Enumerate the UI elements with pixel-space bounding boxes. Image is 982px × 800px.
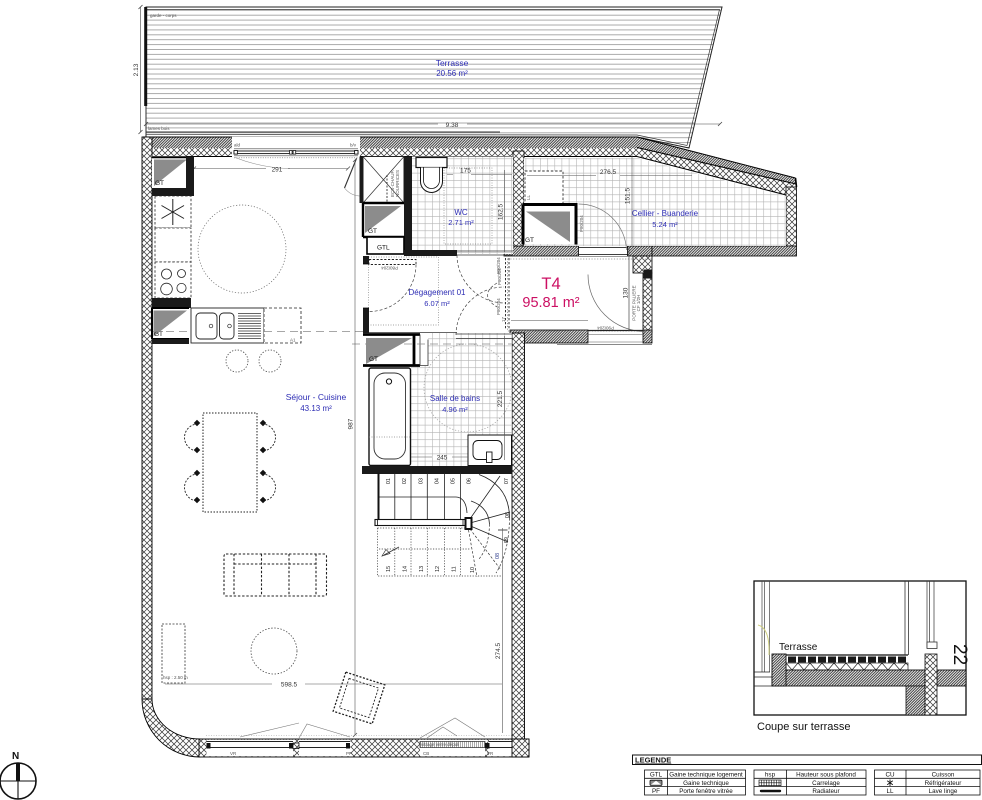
svg-text:13: 13 xyxy=(419,566,425,572)
svg-text:130: 130 xyxy=(623,287,630,298)
svg-text:GT: GT xyxy=(368,228,377,235)
svg-text:245: 245 xyxy=(437,455,448,462)
svg-text:43.13 m²: 43.13 m² xyxy=(300,404,332,413)
svg-text:01: 01 xyxy=(386,478,392,484)
svg-text:02: 02 xyxy=(402,478,408,484)
svg-text:Porte fenêtre vitrée: Porte fenêtre vitrée xyxy=(679,788,733,795)
svg-text:Salle de bains: Salle de bains xyxy=(430,394,480,403)
svg-text:P90/204: P90/204 xyxy=(597,326,614,331)
svg-text:162.5: 162.5 xyxy=(498,203,505,220)
svg-text:4.96 m²: 4.96 m² xyxy=(442,405,468,414)
svg-text:221.5: 221.5 xyxy=(497,390,504,407)
svg-text:06: 06 xyxy=(467,478,473,484)
svg-text:lames bois: lames bois xyxy=(148,126,170,131)
svg-text:Cuisson: Cuisson xyxy=(932,772,955,779)
svg-text:291: 291 xyxy=(272,167,283,174)
svg-text:9.38: 9.38 xyxy=(446,122,459,129)
svg-text:LEGENDE: LEGENDE xyxy=(635,756,671,765)
svg-text:A1: A1 xyxy=(290,338,296,343)
svg-text:b/v: b/v xyxy=(350,143,357,148)
svg-text:Gaine technique logement: Gaine technique logement xyxy=(669,772,743,779)
svg-text:20.56 m²: 20.56 m² xyxy=(436,69,468,78)
svg-text:151.5: 151.5 xyxy=(625,187,632,204)
svg-text:Carrelage: Carrelage xyxy=(812,780,840,787)
svg-text:Terrasse: Terrasse xyxy=(779,642,818,653)
svg-text:12: 12 xyxy=(435,566,441,572)
svg-text:276.5: 276.5 xyxy=(600,169,617,176)
svg-text:Séjour - Cuisine: Séjour - Cuisine xyxy=(286,392,347,402)
svg-text:T4: T4 xyxy=(541,275,560,293)
svg-text:10: 10 xyxy=(470,567,476,573)
svg-text:Coupe sur terrasse: Coupe sur terrasse xyxy=(757,721,851,733)
svg-text:5.24 m²: 5.24 m² xyxy=(652,220,678,229)
svg-text:P80/204: P80/204 xyxy=(496,257,501,274)
svg-text:CF 1/2H: CF 1/2H xyxy=(636,295,641,312)
svg-text:PF: PF xyxy=(652,788,660,795)
svg-text:VR: VR xyxy=(230,751,237,756)
svg-text:garde - corps: garde - corps xyxy=(150,13,177,18)
svg-text:P80/204: P80/204 xyxy=(496,298,501,315)
svg-text:987: 987 xyxy=(348,418,355,429)
svg-text:CU: CU xyxy=(885,772,895,779)
svg-text:09: 09 xyxy=(504,537,510,543)
svg-text:GT: GT xyxy=(369,356,378,363)
svg-text:22: 22 xyxy=(949,644,970,665)
svg-text:ald: ald xyxy=(234,143,241,148)
svg-text:hsp: hsp xyxy=(765,772,776,779)
svg-text:17: 17 xyxy=(501,316,506,322)
svg-text:15: 15 xyxy=(386,566,392,572)
svg-text:Réfrigérateur: Réfrigérateur xyxy=(925,780,962,787)
svg-text:hsp : 2.50 m: hsp : 2.50 m xyxy=(163,675,188,680)
svg-text:WC: WC xyxy=(454,208,468,217)
svg-text:14: 14 xyxy=(403,566,409,572)
svg-text:03: 03 xyxy=(419,478,425,484)
svg-text:vitrage verre dépoli: vitrage verre dépoli xyxy=(421,742,459,747)
svg-text:GT: GT xyxy=(525,237,534,244)
svg-text:LL: LL xyxy=(886,788,894,795)
svg-text:95.81 m²: 95.81 m² xyxy=(522,295,579,311)
svg-text:VR: VR xyxy=(487,751,494,756)
svg-text:Cellier - Buanderie: Cellier - Buanderie xyxy=(632,209,699,218)
svg-text:04: 04 xyxy=(435,478,441,484)
svg-text:07: 07 xyxy=(504,478,510,484)
svg-text:2.71 m²: 2.71 m² xyxy=(448,218,474,227)
svg-text:CB: CB xyxy=(423,751,429,756)
svg-text:GTL: GTL xyxy=(377,245,390,252)
svg-text:Lave linge: Lave linge xyxy=(929,788,958,795)
svg-text:Dégagement 01: Dégagement 01 xyxy=(409,288,466,297)
svg-text:GTL: GTL xyxy=(650,772,663,779)
svg-text:NOURRICES: NOURRICES xyxy=(395,170,400,197)
svg-text:N: N xyxy=(12,751,19,762)
svg-text:Hauteur sous plafond: Hauteur sous plafond xyxy=(796,772,856,779)
svg-text:Radiateur: Radiateur xyxy=(812,788,839,795)
svg-text:LL: LL xyxy=(526,194,531,200)
svg-text:2.13: 2.13 xyxy=(133,63,140,76)
svg-text:P80/204: P80/204 xyxy=(579,215,584,232)
svg-text:Gaine technique: Gaine technique xyxy=(683,780,729,787)
svg-text:598.5: 598.5 xyxy=(281,682,298,689)
svg-text:175: 175 xyxy=(460,168,471,175)
svg-text:11: 11 xyxy=(452,566,458,572)
svg-text:05: 05 xyxy=(451,478,457,484)
svg-text:PF: PF xyxy=(346,751,352,756)
svg-text:GT: GT xyxy=(154,331,163,338)
svg-text:274.5: 274.5 xyxy=(495,642,502,659)
svg-text:6.07 m²: 6.07 m² xyxy=(424,299,450,308)
svg-text:ECS-CHAUF.: ECS-CHAUF. xyxy=(390,170,395,197)
svg-text:P80/204: P80/204 xyxy=(381,266,398,271)
svg-text:Terrasse: Terrasse xyxy=(436,58,469,68)
svg-text:GT: GT xyxy=(155,180,164,187)
svg-text:08: 08 xyxy=(495,553,501,559)
